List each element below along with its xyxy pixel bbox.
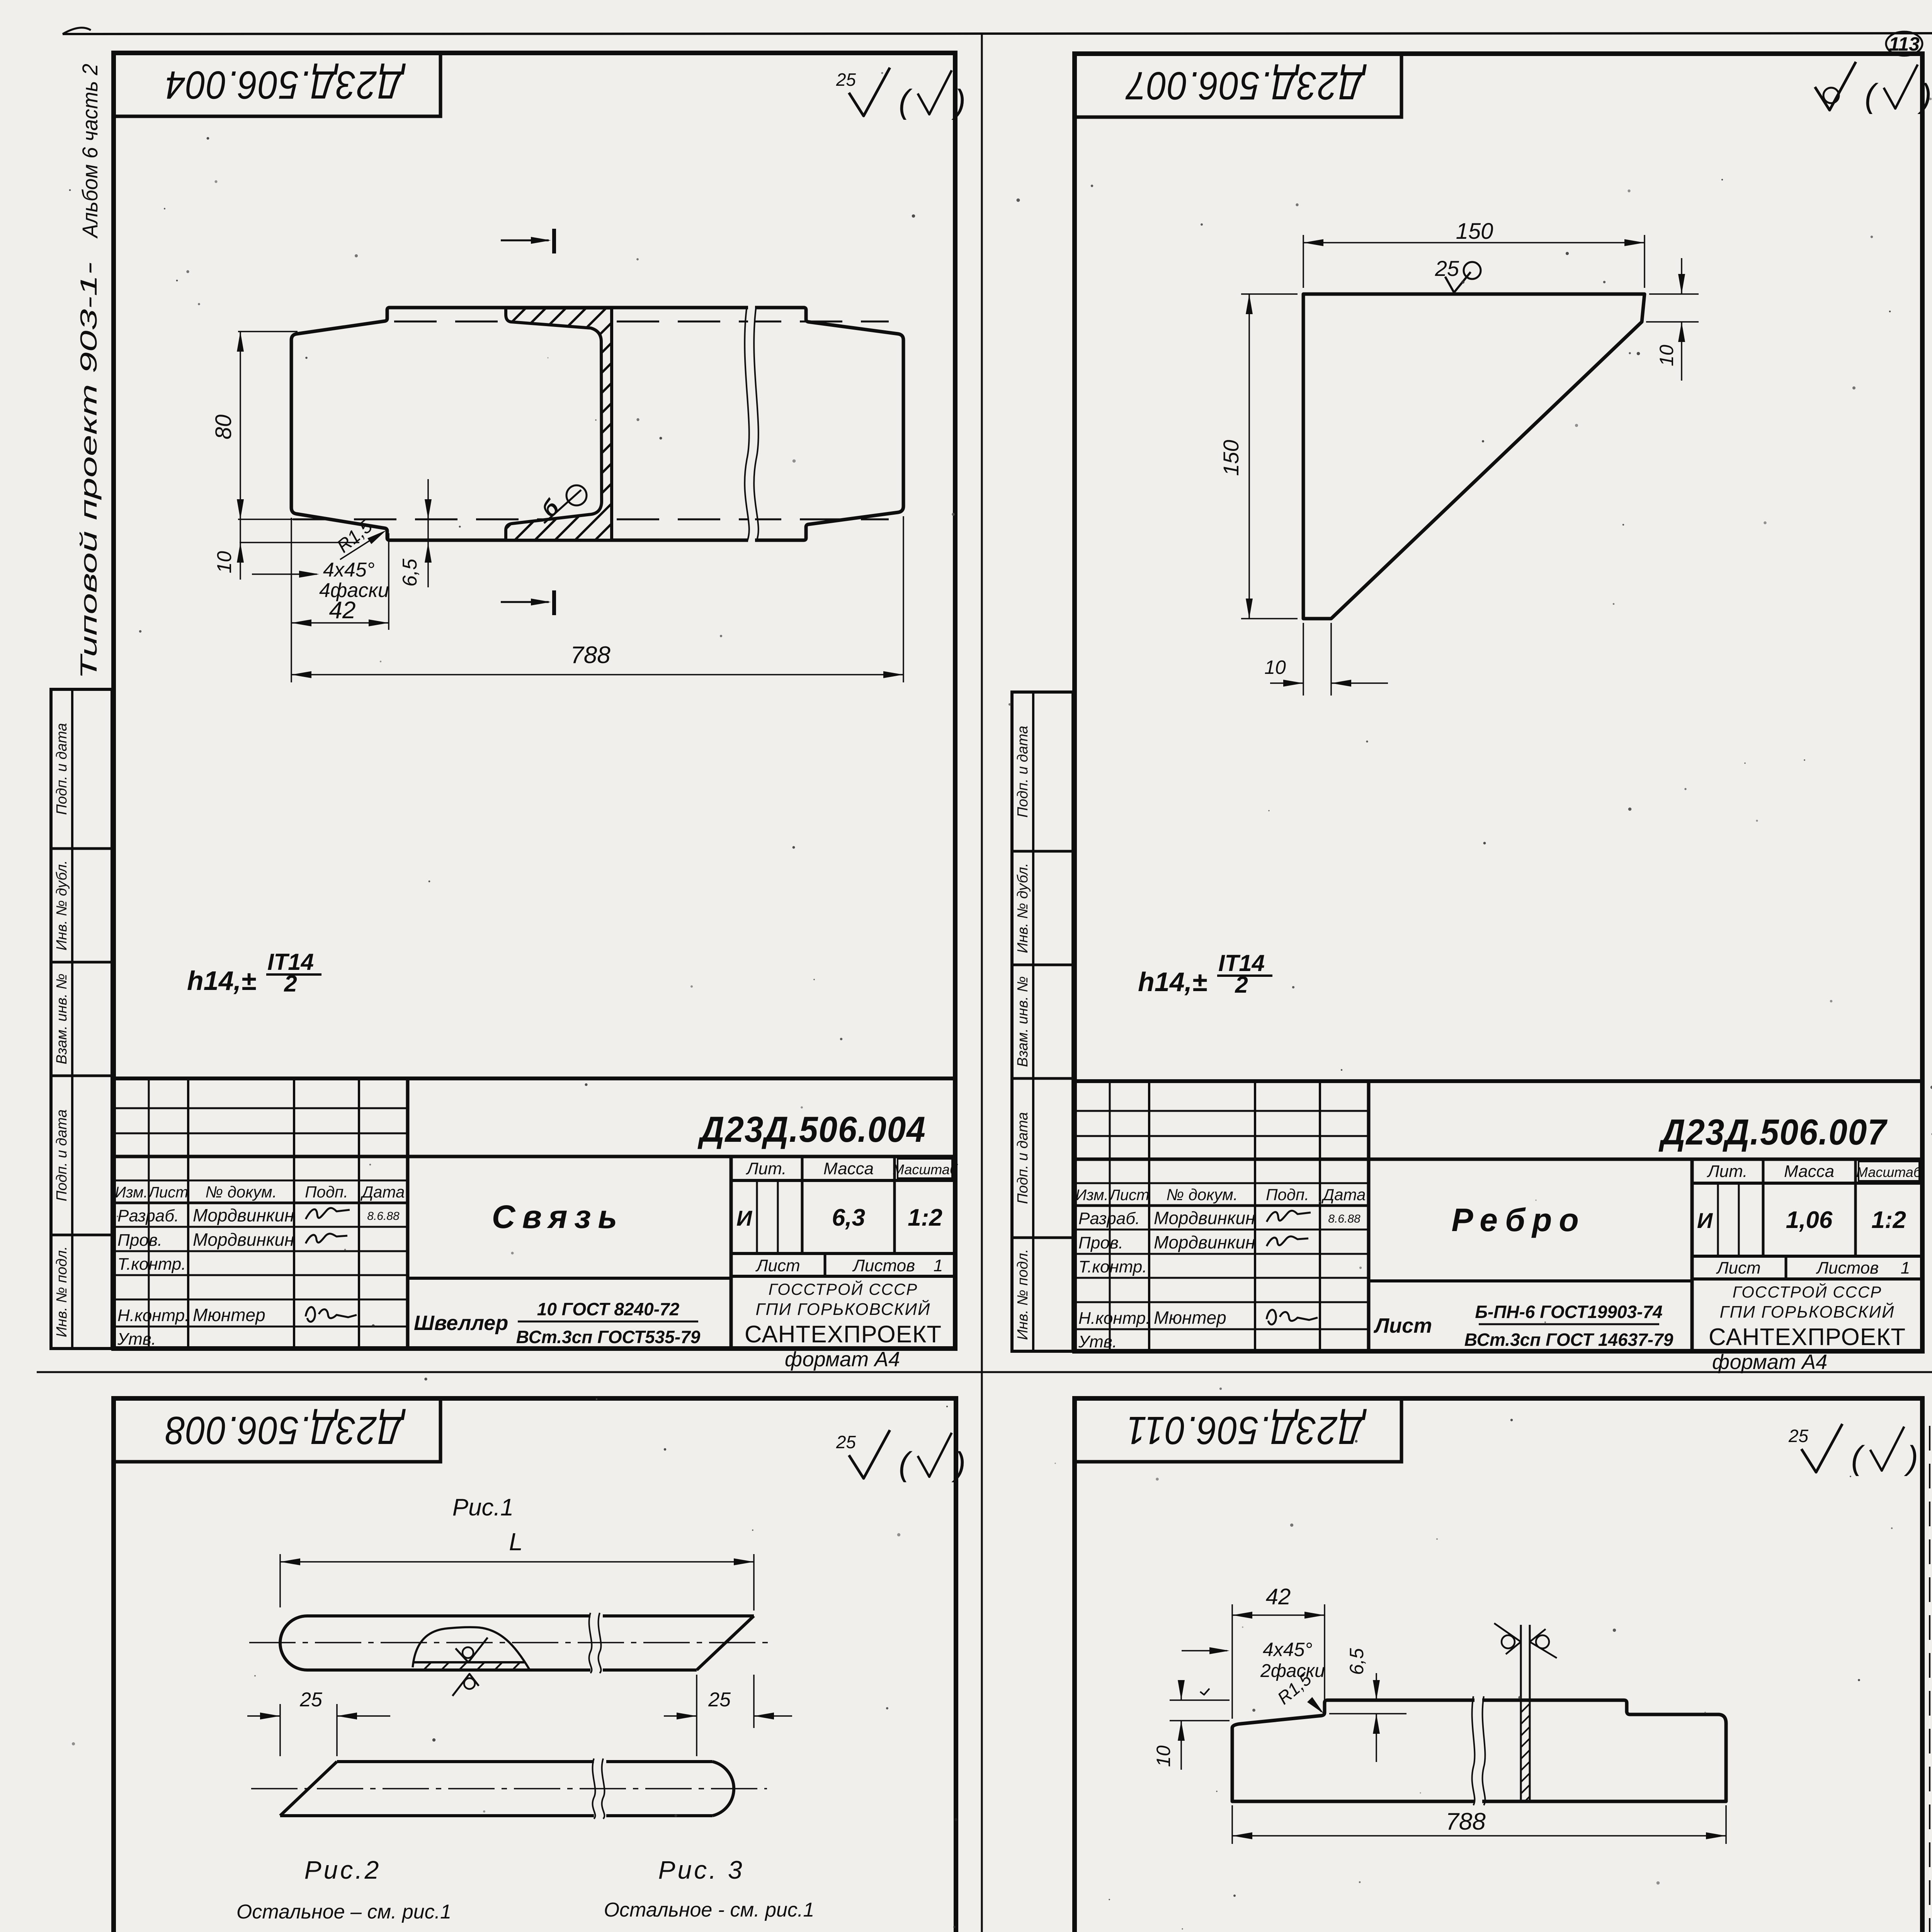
- svg-text:ГПИ ГОРЬКОВСКИЙ: ГПИ ГОРЬКОВСКИЙ: [1720, 1302, 1895, 1321]
- svg-text:10: 10: [213, 551, 236, 573]
- svg-text:h14,±: h14,±: [1138, 967, 1207, 997]
- svg-text:Д23Д.506.007: Д23Д.506.007: [1658, 1112, 1888, 1152]
- svg-text:8.6.88: 8.6.88: [1328, 1213, 1361, 1225]
- svg-text:2: 2: [284, 971, 297, 997]
- svg-text:6,5: 6,5: [1346, 1648, 1367, 1675]
- svg-text:25: 25: [708, 1689, 731, 1711]
- svg-text:Утв.: Утв.: [117, 1330, 156, 1349]
- svg-text:4фаски: 4фаски: [319, 579, 389, 602]
- svg-text:150: 150: [1456, 219, 1493, 244]
- svg-text:ВСт.3сп ГОСТ 14637-79: ВСт.3сп ГОСТ 14637-79: [1464, 1330, 1673, 1350]
- svg-text:Дата: Дата: [1321, 1185, 1366, 1204]
- svg-text:Подп. и дата: Подп. и дата: [54, 723, 70, 815]
- svg-text:Мордвинкин: Мордвинкин: [1154, 1232, 1255, 1252]
- svg-text:Т.контр.: Т.контр.: [117, 1255, 186, 1274]
- svg-text:ГОССТРОЙ СССР: ГОССТРОЙ СССР: [769, 1280, 918, 1298]
- svg-text:1: 1: [1901, 1259, 1910, 1277]
- svg-text:h14,±: h14,±: [187, 966, 256, 996]
- svg-text:Д23Д.506.008: Д23Д.506.008: [165, 1408, 406, 1452]
- svg-text:Н.контр.: Н.контр.: [117, 1306, 189, 1325]
- svg-text:Лит.: Лит.: [745, 1159, 786, 1178]
- svg-text:10: 10: [1153, 1745, 1174, 1767]
- svg-text:10: 10: [1656, 345, 1677, 366]
- svg-text:Рис.2: Рис.2: [304, 1855, 381, 1884]
- svg-text:Д23Д.506.011: Д23Д.506.011: [1126, 1408, 1367, 1452]
- svg-text:№ докум.: № докум.: [205, 1183, 277, 1201]
- svg-text:Б-ПН-6 ГОСТ19903-74: Б-ПН-6 ГОСТ19903-74: [1475, 1302, 1662, 1322]
- svg-text:4x45°: 4x45°: [323, 559, 375, 581]
- svg-text:Мюнтер: Мюнтер: [1154, 1308, 1226, 1328]
- svg-text:И: И: [736, 1206, 753, 1230]
- svg-text:Лист: Лист: [1373, 1314, 1432, 1337]
- svg-text:ВСт.3сп ГОСТ535-79: ВСт.3сп ГОСТ535-79: [516, 1327, 701, 1347]
- svg-text:Мордвинкин: Мордвинкин: [193, 1230, 294, 1250]
- svg-text:Масса: Масса: [1784, 1162, 1834, 1181]
- svg-text:№ докум.: № докум.: [1166, 1185, 1238, 1204]
- svg-text:Лит.: Лит.: [1706, 1162, 1747, 1181]
- svg-text:Масштаб: Масштаб: [893, 1162, 958, 1177]
- svg-text:Мюнтер: Мюнтер: [193, 1305, 265, 1325]
- svg-text:ГПИ ГОРЬКОВСКИЙ: ГПИ ГОРЬКОВСКИЙ: [756, 1299, 931, 1319]
- svg-text:Листов: Листов: [1816, 1259, 1879, 1277]
- svg-text:Подп. и дата: Подп. и дата: [1015, 726, 1031, 818]
- svg-text:10 ГОСТ 8240-72: 10 ГОСТ 8240-72: [537, 1299, 680, 1319]
- svg-text:Швеллер: Швеллер: [414, 1311, 508, 1335]
- svg-text:Листов: Листов: [852, 1256, 915, 1275]
- svg-text:Н.контр.: Н.контр.: [1078, 1309, 1150, 1328]
- svg-text:Т.контр.: Т.контр.: [1078, 1257, 1147, 1276]
- svg-text:Масса: Масса: [823, 1159, 874, 1178]
- svg-text:Инв. № дубл.: Инв. № дубл.: [54, 860, 70, 951]
- svg-text:8.6.88: 8.6.88: [367, 1210, 400, 1223]
- svg-text:Типовой проект 903-1-: Типовой проект 903-1-: [76, 262, 102, 679]
- svg-text:6,5: 6,5: [399, 558, 421, 587]
- svg-text:80: 80: [211, 415, 236, 440]
- svg-text:Подп.: Подп.: [305, 1183, 348, 1201]
- svg-text:Инв. № подл.: Инв. № подл.: [54, 1246, 70, 1337]
- svg-text:Подп. и дата: Подп. и дата: [1015, 1112, 1031, 1204]
- svg-text:Остальное - см. рис.1: Остальное - см. рис.1: [604, 1899, 815, 1921]
- svg-text:Лист: Лист: [755, 1256, 800, 1275]
- svg-text:САНТЕХПРОЕКТ: САНТЕХПРОЕКТ: [745, 1321, 942, 1348]
- svg-text:Изм.: Изм.: [1075, 1187, 1108, 1204]
- svg-text:формат А4: формат А4: [1712, 1350, 1827, 1374]
- svg-text:формат А4: формат А4: [785, 1348, 900, 1371]
- svg-text:Ребро: Ребро: [1451, 1202, 1585, 1238]
- svg-text:Дата: Дата: [361, 1183, 405, 1201]
- svg-text:788: 788: [570, 642, 611, 668]
- svg-text:Рис.1: Рис.1: [452, 1494, 514, 1521]
- svg-text:Лист: Лист: [148, 1184, 189, 1201]
- svg-text:Д23Д.506.004: Д23Д.506.004: [165, 63, 406, 107]
- svg-text:Изм.: Изм.: [115, 1184, 148, 1201]
- svg-text:1,06: 1,06: [1786, 1207, 1833, 1233]
- svg-text:Остальное – см. рис.1: Остальное – см. рис.1: [236, 1901, 451, 1923]
- svg-text:Подп. и дата: Подп. и дата: [54, 1109, 70, 1201]
- svg-text:Утв.: Утв.: [1078, 1332, 1117, 1351]
- svg-text:L: L: [509, 1528, 523, 1556]
- svg-text:Мордвинкин: Мордвинкин: [1154, 1208, 1255, 1228]
- svg-text:Инв. № дубл.: Инв. № дубл.: [1015, 863, 1031, 953]
- svg-text:4x45°: 4x45°: [1263, 1639, 1312, 1660]
- svg-text:Д23Д.506.007: Д23Д.506.007: [1125, 64, 1367, 108]
- svg-text:И: И: [1697, 1208, 1713, 1233]
- svg-text:Связь: Связь: [492, 1199, 624, 1235]
- svg-text:Мордвинкин: Мордвинкин: [193, 1205, 294, 1225]
- svg-text:6,3: 6,3: [832, 1204, 865, 1231]
- svg-text:150: 150: [1219, 440, 1243, 476]
- svg-text:25: 25: [1788, 1426, 1809, 1446]
- svg-text:1:2: 1:2: [1871, 1207, 1906, 1233]
- svg-text:788: 788: [1446, 1808, 1486, 1835]
- svg-text:10: 10: [1264, 656, 1286, 678]
- svg-text:2: 2: [1235, 972, 1248, 998]
- svg-text:1: 1: [934, 1256, 943, 1275]
- svg-text:Масштаб: Масштаб: [1856, 1164, 1922, 1180]
- svg-text:25: 25: [1435, 256, 1459, 281]
- svg-text:25: 25: [836, 1432, 856, 1452]
- svg-text:Д23Д.506.004: Д23Д.506.004: [697, 1109, 926, 1150]
- svg-text:Взам. инв. №: Взам. инв. №: [54, 973, 70, 1064]
- svg-text:Разраб.: Разраб.: [117, 1206, 179, 1225]
- svg-text:25: 25: [299, 1689, 323, 1711]
- svg-text:1:2: 1:2: [908, 1204, 942, 1231]
- svg-text:Взам. инв. №: Взам. инв. №: [1015, 976, 1031, 1067]
- svg-text:Рис. 3: Рис. 3: [658, 1855, 744, 1884]
- svg-text:Инв. № подл.: Инв. № подл.: [1015, 1249, 1031, 1340]
- svg-text:Пров.: Пров.: [1078, 1233, 1123, 1252]
- svg-text:25: 25: [836, 70, 856, 90]
- svg-text:42: 42: [1266, 1584, 1291, 1609]
- svg-text:Разраб.: Разраб.: [1078, 1209, 1140, 1228]
- svg-text:САНТЕХПРОЕКТ: САНТЕХПРОЕКТ: [1709, 1324, 1906, 1350]
- svg-text:Подп.: Подп.: [1266, 1185, 1309, 1204]
- svg-text:ГОССТРОЙ СССР: ГОССТРОЙ СССР: [1733, 1282, 1882, 1301]
- svg-text:Пров.: Пров.: [117, 1231, 162, 1250]
- svg-text:Альбом 6 часть 2: Альбом 6 часть 2: [78, 64, 102, 239]
- svg-text:Лист: Лист: [1109, 1187, 1150, 1204]
- svg-text:Лист: Лист: [1716, 1259, 1760, 1277]
